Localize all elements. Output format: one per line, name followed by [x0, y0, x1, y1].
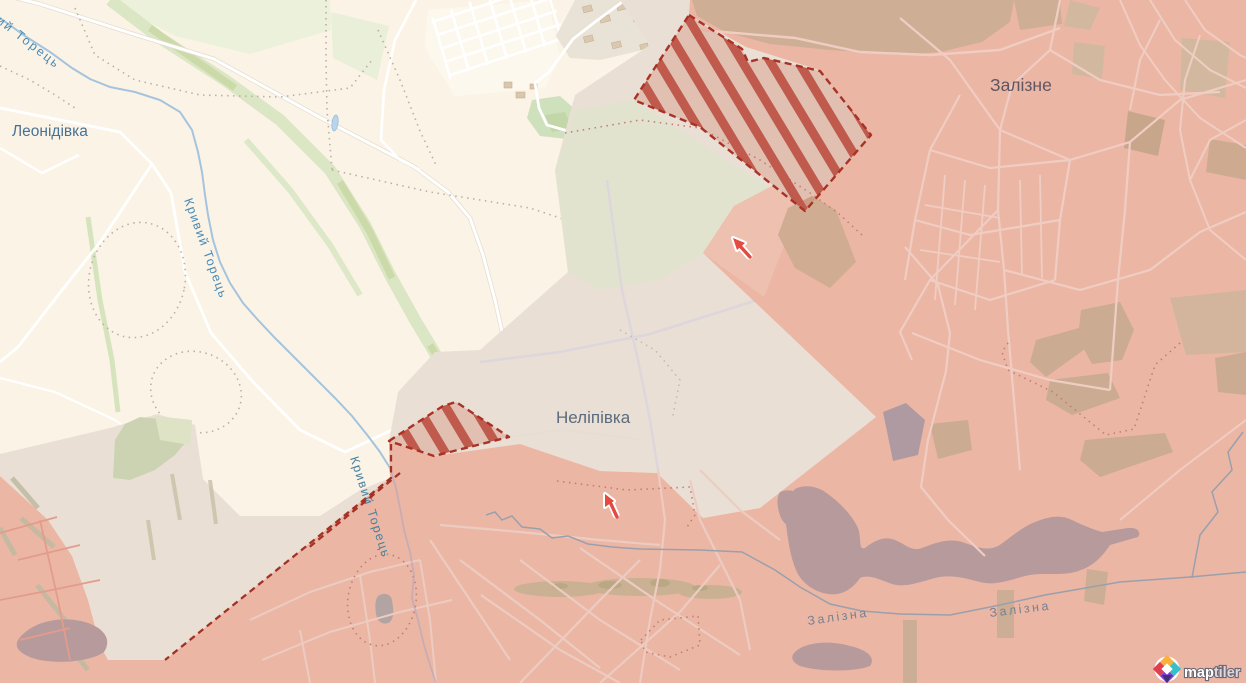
svg-text:maptiler: maptiler — [1184, 665, 1241, 681]
svg-text:Залізне: Залізне — [990, 75, 1052, 95]
svg-text:Неліпівка: Неліпівка — [556, 408, 631, 427]
svg-text:Леонідівка: Леонідівка — [12, 123, 88, 140]
